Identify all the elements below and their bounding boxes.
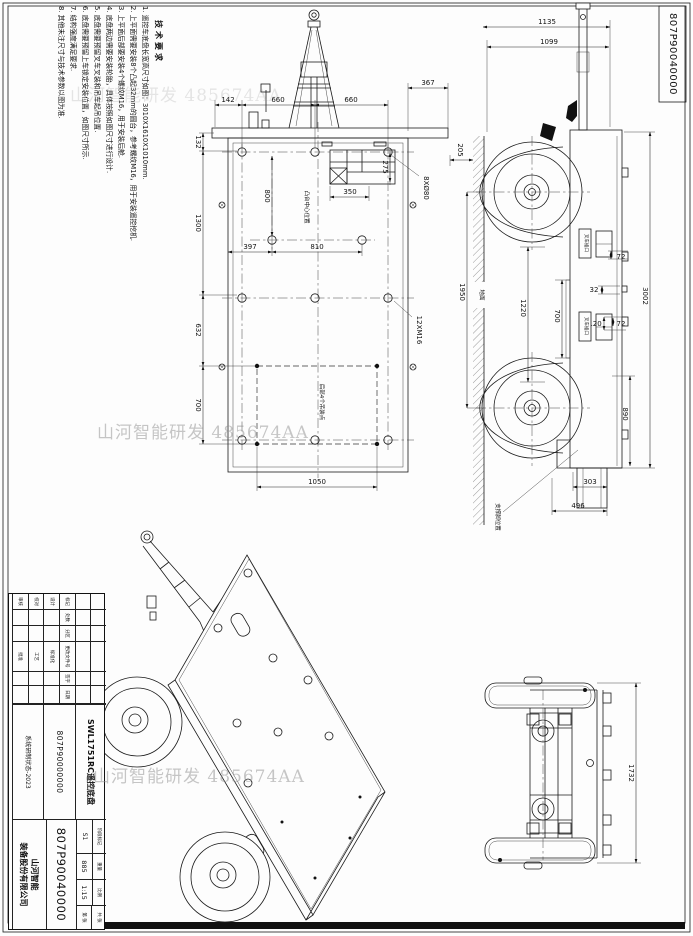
tech-req-item: 2. 上平面需要安装8个凸起32mm的圆台，参考螺纹M16，用于安装遥控挖机.: [127, 6, 139, 306]
dim-label: 72: [617, 253, 626, 261]
title-block: 标记处数分区更改文件号签字日期 设计标准化 校对工艺 审核批准 SWL1751R…: [8, 593, 105, 930]
tech-req-item: 4. 底盘两边需要安装轮胎，具体按照如图尺寸进行设计.: [103, 6, 115, 306]
dim-label: 660: [271, 96, 284, 104]
dim-label: 1135: [538, 18, 556, 26]
dim-label: 1050: [308, 478, 326, 486]
dim-label: 275: [381, 160, 389, 173]
dim-label: 205: [456, 143, 464, 156]
extension-lines: [199, 83, 448, 491]
dim-label: 800: [263, 189, 271, 202]
tow-ring: [309, 10, 319, 20]
rear-wheel: [476, 352, 590, 466]
product-zone: SWL1751RC遥控底盘 807P90000000 系统研制状态-2023: [12, 704, 106, 819]
tech-req-item: 3. 上平面后部要安装4个螺纹M16，用于安装后舱.: [115, 6, 127, 306]
sheet-total: 共 张: [91, 905, 106, 929]
tech-req-item: 7. 结构强度满足要求.: [67, 6, 79, 306]
dim-label: 397: [243, 243, 256, 251]
dim-label: 132: [194, 135, 202, 148]
front-wheel: [476, 136, 590, 250]
weight-label: 重量: [92, 853, 106, 879]
dim-label: 1732: [627, 764, 635, 782]
dim-label: 367: [421, 79, 434, 87]
tech-req-item: 6. 底盘需要预留上车锁定安装位置，如图尺寸所示.: [79, 6, 91, 306]
tech-req-title: 技术要求: [151, 6, 166, 306]
rear-view: 1732: [485, 677, 641, 869]
revision-signature-grid: 标记处数分区更改文件号签字日期 设计标准化 校对工艺 审核批准: [12, 594, 106, 704]
chassis-body: [570, 130, 622, 468]
dim-label: 32: [590, 286, 599, 294]
thread-callout: 12XM16: [415, 316, 423, 345]
dim-label: 1220: [519, 299, 527, 317]
lift-point-zone: [257, 366, 377, 444]
tech-req-item: 8. 其他未注尺寸与技术参数以图为准.: [55, 6, 67, 306]
scale-label: 比例: [92, 879, 106, 905]
dim-label: 700: [553, 309, 561, 322]
company-name: 山河智能 装备股份有限公司: [12, 819, 46, 929]
product-name: SWL1751RC遥控底盘: [75, 704, 106, 819]
lift-label: 后部4个吊装点: [318, 384, 326, 421]
tire: [485, 683, 595, 708]
drawing-sheet: 142 660 660 367 132 1300 632 700 800 397…: [0, 0, 693, 936]
cross-beam: [212, 128, 448, 138]
drawing-info-zone: 阶段标记 重量 比例 共 张 S1 885 1:15 第 张 807P90040…: [12, 819, 106, 929]
dim-label: 1950: [458, 283, 466, 301]
stage-value: S1: [76, 819, 92, 853]
support-label: 支撑脚位置: [494, 503, 502, 531]
ground-label: 地面: [478, 289, 486, 301]
drawing-number: 807P90040000: [46, 819, 76, 929]
panel-label: 凸台中心位置: [303, 190, 311, 224]
corner-drawing-number: 807P90040000: [659, 6, 686, 102]
side-view: 1135 1099 205 1950 1220 700 72 32 120 72…: [450, 3, 655, 531]
dim-label: 303: [583, 478, 596, 486]
dim-label: 700: [194, 398, 202, 411]
top-view: 142 660 660 367 132 1300 632 700 800 397…: [194, 10, 448, 491]
status-note: 系统研制状态-2023: [12, 704, 43, 819]
tech-req-item: 5. 底盘需要预留叉车叉装和吊车起吊位置.: [91, 6, 103, 306]
dim-label: 350: [343, 188, 356, 196]
dim-label: 810: [310, 243, 323, 251]
tow-pole: [566, 3, 590, 130]
weight-value: 885: [76, 853, 92, 879]
dim-label: 496: [571, 502, 585, 510]
dim-label: 660: [344, 96, 357, 104]
axle-assembly: [527, 690, 572, 860]
product-code: 807P90000000: [43, 704, 74, 819]
hole-callout: 8XØ80: [422, 176, 430, 200]
tech-req-item: 1. 遥控车底盘长宽高尺寸如图：3010X1610X1010mm.: [139, 6, 151, 306]
sheet-number: 第 张: [76, 905, 91, 929]
dim-label: 72: [617, 320, 626, 328]
iso-rear-wheel: [180, 832, 270, 922]
dim-label: 890: [621, 407, 629, 420]
fork-slot-label: 叉车插口: [583, 234, 590, 252]
dim-label: 1099: [540, 38, 558, 46]
pivot-bracket: [540, 123, 556, 141]
jockey-bracket: [249, 112, 258, 128]
dim-label: 142: [221, 96, 234, 104]
fork-slot-label: 叉车插口: [583, 317, 590, 335]
technical-requirements: 技术要求 1. 遥控车底盘长宽高尺寸如图：3010X1610X1010mm. 2…: [16, 6, 166, 306]
edge-lift-symbols: [219, 202, 416, 370]
rear-body-edge: [498, 688, 611, 862]
dim-label: 3002: [641, 287, 649, 305]
dim-label: 1300: [194, 214, 202, 232]
dim-label: 632: [194, 323, 202, 336]
isometric-view: [92, 531, 385, 922]
scale-value: 1:15: [76, 879, 92, 905]
stage-label: 阶段标记: [92, 819, 106, 853]
